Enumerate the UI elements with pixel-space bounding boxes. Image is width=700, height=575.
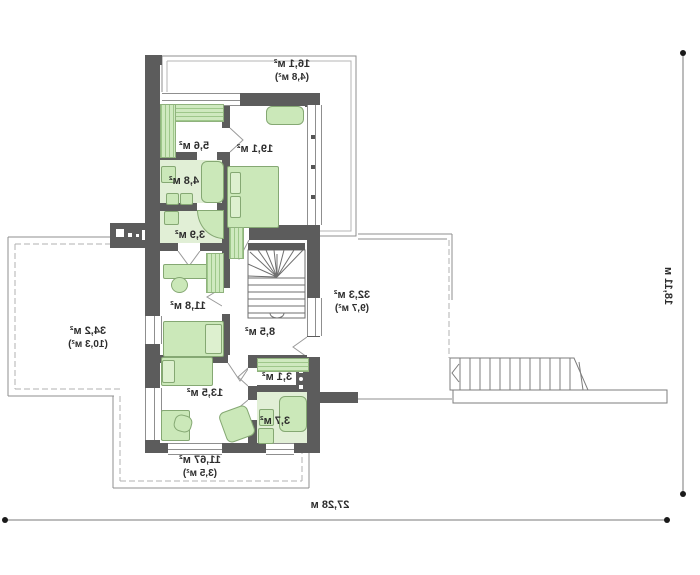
pillow-left-room [205,324,222,354]
label-balcony-top: 16,1 м² (4,8 м²) [244,58,340,84]
chimney-flue-4 [142,230,145,240]
door-gap-utility [178,243,200,251]
dimension-height-label: 18,11 м [662,251,674,321]
wardrobe-left-room [206,253,224,293]
floor-plan-canvas: 16,1 м² (4,8 м²) 5,6 м² 19,1 м² 4,8 м² 3… [0,0,700,575]
pillow-2 [230,196,241,218]
terrace-right-area: 32,3 м² [334,289,370,301]
sofa [266,106,304,125]
label-bathroom-lower: 3,7 м² [245,415,305,428]
window-mullion-3 [311,195,315,199]
vent-dot-3 [299,385,303,389]
washer-lower [258,428,274,444]
balcony-extra: (4,8 м²) [275,72,309,83]
window-left-1 [145,316,162,344]
door-gap-terrace-right [307,337,320,357]
label-wardrobe: 5,6 м² [164,140,224,153]
label-terrace-right: 32,3 м² (9,7 м²) [304,289,400,315]
label-bedroom: 19,1 м² [225,143,285,156]
label-terrace-left: 34,2 м² (10,3 м²) [40,325,136,351]
balcony-area: 16,1 м² [274,58,310,70]
wall-top-left-stub [145,55,162,65]
terrace-right-extra: (9,7 м²) [335,303,369,314]
window-bottom-2 [266,443,294,455]
exterior-stairs [450,358,667,403]
pillow-1 [230,172,241,194]
label-terrace-bottom: 11,67 м² (3,5 м²) [152,454,248,480]
washer [164,211,179,225]
label-hall: 8,5 м² [230,326,290,339]
wall-stub-right [307,392,358,403]
chair-left [171,277,188,293]
interior-stairs [248,250,305,318]
stair-top-bar [248,243,305,250]
label-closet: 3,1 м² [247,371,307,384]
toilet-upper [166,193,179,205]
window-left-2 [145,388,162,440]
label-utility: 3,9 м² [160,229,220,242]
window-mullion-2 [311,165,315,169]
closet-shelves [257,358,309,372]
label-bathroom-upper: 4,8 м² [154,175,214,188]
label-bedroom-lower: 13,5 м² [175,387,235,400]
window-mullion-1 [311,135,315,139]
chimney-flue-3 [136,234,139,237]
chimney-flue-2 [128,233,132,237]
terrace-left-extra: (10,3 м²) [68,339,108,350]
door-gap-bath-upper [197,152,217,160]
terrace-right-outline [358,234,452,399]
terrace-left-outline [8,237,145,396]
terrace-bottom-extra: (3,5 м²) [183,468,217,479]
pillow-lower-room [162,360,175,383]
terrace-left-area: 34,2 м² [70,325,106,337]
terrace-bottom-area: 11,67 м² [179,454,221,466]
plan-linework [0,0,700,575]
dimension-width-label: 27,28 м [280,499,380,511]
chimney-flue-1 [116,229,124,237]
dimension-lines [2,50,686,523]
bidet-upper [180,193,193,205]
corridor-closet [229,227,244,259]
label-bedroom-left: 11,8 м² [158,300,218,313]
